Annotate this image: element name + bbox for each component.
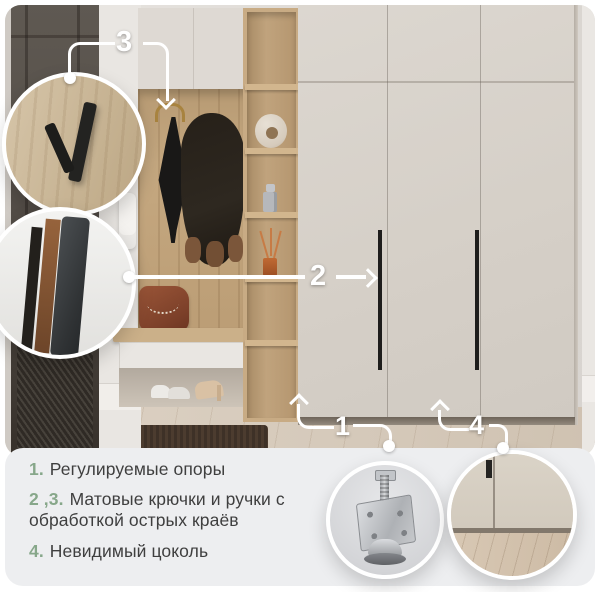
wardrobe-seam <box>387 5 388 425</box>
hook-closeup-inset <box>2 72 146 216</box>
callout-1-label: 1 <box>335 413 350 440</box>
sneaker <box>168 387 190 399</box>
matte-hook-icon <box>44 122 75 174</box>
coat-trim <box>228 235 243 262</box>
wardrobe-side-edge <box>574 5 578 425</box>
robot-figurine <box>263 192 277 212</box>
wardrobe-seam <box>298 81 578 83</box>
callout-4-line <box>438 410 469 431</box>
coat-trim <box>185 237 201 263</box>
shelf-board <box>245 148 298 154</box>
callout-2-line <box>133 275 305 279</box>
callout-1-line <box>297 404 334 429</box>
diffuser-reed <box>270 228 272 256</box>
heeled-shoe-heel <box>217 385 221 401</box>
reed-diffuser <box>263 258 277 276</box>
feature-number: 4. <box>29 541 44 561</box>
feature-text: Невидимый цоколь <box>50 541 208 561</box>
plinth-handle <box>486 460 492 478</box>
plinth-door-gap <box>493 454 495 528</box>
plinth-closeup-inset <box>447 450 577 580</box>
bench-drawer <box>119 342 250 370</box>
door-rail <box>11 35 99 38</box>
feature-item-4: 4.Невидимый цоколь <box>29 541 208 562</box>
callout-3-label: 3 <box>116 28 132 57</box>
feature-text: Матовые крючки и ручки с обработкой остр… <box>29 489 285 530</box>
callout-4-line <box>489 424 508 444</box>
wardrobe <box>298 5 578 425</box>
callout-2-label: 2 <box>310 262 326 291</box>
adjustable-foot-closeup-inset <box>326 461 444 579</box>
baseboard <box>582 375 595 402</box>
wardrobe-seam <box>480 5 481 425</box>
wardrobe-handle <box>475 230 479 370</box>
cabinet-seam <box>193 8 194 89</box>
callout-1-dot <box>383 440 395 452</box>
feature-text: Регулируемые опоры <box>50 459 225 479</box>
foot-base <box>364 553 406 565</box>
shelf-board <box>245 84 298 90</box>
feature-number: 1. <box>29 459 44 479</box>
callout-4-dot <box>497 442 509 454</box>
shelf-board <box>245 212 298 218</box>
callout-3-line <box>68 42 115 79</box>
donut-vase <box>255 114 287 148</box>
coat-trim <box>206 241 224 267</box>
shelf-board <box>245 340 298 346</box>
plinth-floor <box>451 533 573 576</box>
feature-item-1: 1.Регулируемые опоры <box>29 459 225 480</box>
callout-4-label: 4 <box>469 412 484 439</box>
bag-chain <box>147 294 179 314</box>
bench-top <box>113 328 248 342</box>
leather-bag <box>139 286 189 332</box>
wardrobe-handle <box>378 230 382 370</box>
plinth-doors <box>451 454 573 528</box>
product-infographic: 1.Регулируемые опоры 2 ,3.Матовые крючки… <box>0 0 600 592</box>
feature-number: 2 ,3. <box>29 489 64 509</box>
